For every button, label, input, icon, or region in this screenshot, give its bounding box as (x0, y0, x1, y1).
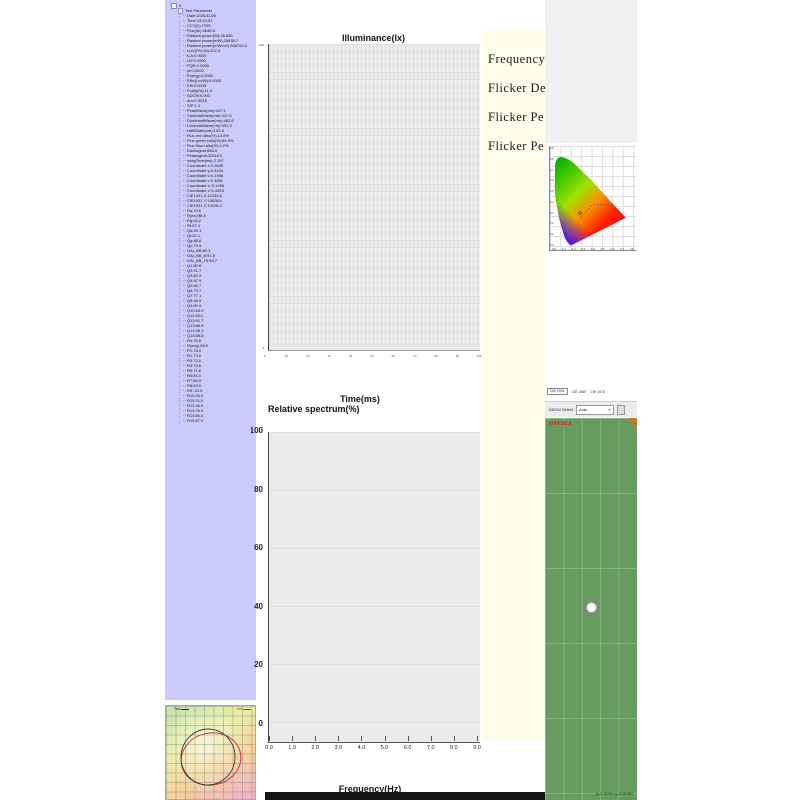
bottom-bar (265, 792, 545, 800)
tab-cie-1976[interactable]: CIE 1976 (590, 390, 605, 394)
x-tick-label: 0 (260, 354, 270, 358)
illuminance-chart-title: Illuminance(lx) (268, 33, 479, 43)
legend-test-label: Test (174, 707, 180, 711)
sdcm-select-label: SDCM Select (549, 407, 573, 412)
x-tick-label: 9.0 (470, 736, 484, 751)
cie-y-tick: 0.1 (550, 233, 553, 236)
app-window: 0 Test Parameter Date:2025/11/20 Time:13… (0, 0, 800, 800)
x-tick-label: 8.0 (447, 736, 461, 751)
tree-node-icon[interactable] (171, 3, 177, 9)
legend-ref: Ref (237, 707, 251, 711)
x-tick-label: 7.0 (424, 736, 438, 751)
x-tick-label: 60 (388, 354, 398, 358)
right-panel: 0.90.80.70.60.50.40.30.20.10.0 0.00.10.2… (545, 0, 637, 800)
cie-y-tick: 0.9 (550, 147, 553, 150)
cie-horseshoe (550, 146, 636, 250)
sdcm-dropdown[interactable]: Auto ▼ (576, 405, 614, 415)
cie-x-tick: 0.7 (620, 247, 624, 251)
cie-y-tick: 0.4 (550, 201, 553, 204)
max-value-label: MAX:92.0 (549, 421, 572, 427)
x-tick-label: 6.0 (401, 736, 415, 751)
spectrum-chart-title: Relative spectrum(%) (268, 404, 398, 414)
cie-x-tick: 0.2 (571, 247, 575, 251)
y-tick-label: 40 (251, 602, 263, 661)
x-tick-label: 10 (281, 354, 291, 358)
cie-x-tick: 0.1 (562, 247, 566, 251)
tab-cie-1960[interactable]: CIE 1960 (572, 390, 587, 394)
polar-plot-panel: Test Ref (165, 705, 256, 800)
x-tick-label: 40 (346, 354, 356, 358)
x-tick-label: 90 (453, 354, 463, 358)
polar-legend: Test Ref (174, 707, 251, 711)
cie-x-ticks: 0.00.10.20.30.40.50.60.70.8 (552, 247, 634, 251)
test-line-swatch (181, 709, 189, 710)
illuminance-plot-area (268, 44, 480, 351)
cie-y-tick: 0.8 (550, 158, 553, 161)
illuminance-x-ticks: 0102030405060708090100 (260, 354, 484, 358)
x-tick-label: 80 (431, 354, 441, 358)
y-tick-label: 60 (251, 543, 263, 602)
measurement-spot-dot (587, 603, 596, 612)
x-tick-label: 20 (303, 354, 313, 358)
cie-chromaticity-diagram: 0.90.80.70.60.50.40.30.20.10.0 0.00.10.2… (549, 146, 636, 251)
chevron-down-icon: ▼ (608, 408, 611, 412)
corner-marker-icon (627, 418, 637, 428)
flicker-line: Flicker Pe (483, 110, 545, 139)
illuminance-y-min-tick: 0 (250, 346, 264, 350)
flicker-line: Flicker De (483, 81, 545, 110)
tab-cie-1931[interactable]: CIE 1931 (547, 388, 568, 395)
spectrum-x-ticks: 0.01.02.03.04.05.06.07.08.09.0 (262, 736, 484, 751)
flicker-lines: Frequency(Flicker DeFlicker PeFlicker Pe (483, 30, 545, 168)
cie-x-tick: 0.6 (610, 247, 614, 251)
cie-y-tick: 0.6 (550, 179, 553, 182)
spectrum-plot-area (268, 432, 480, 743)
flicker-line: Flicker Pe (483, 139, 545, 168)
camera-target-panel: MAX:92.0 x:0.0000 y:0.0000 (545, 418, 637, 800)
polar-curves (166, 706, 255, 799)
parameter-tree[interactable]: 0 Test Parameter Date:2025/11/20 Time:13… (165, 0, 256, 700)
legend-ref-label: Ref (237, 707, 242, 711)
illuminance-x-axis-label: Time(ms) (300, 394, 420, 404)
cie-x-tick: 0.4 (591, 247, 595, 251)
x-tick-label: 1.0 (285, 736, 299, 751)
x-tick-label: 3.0 (331, 736, 345, 751)
cie-x-tick: 0.8 (630, 247, 634, 251)
x-tick-label: 30 (324, 354, 334, 358)
sdcm-toolbar: SDCM Select Auto ▼ (545, 401, 637, 417)
cie-y-tick: 0.2 (550, 222, 553, 225)
cie-x-tick: 0.0 (552, 247, 556, 251)
cie-y-tick: 0.3 (550, 212, 553, 215)
x-tick-label: 4.0 (354, 736, 368, 751)
ref-line-swatch (243, 709, 251, 710)
y-tick-label: 80 (251, 485, 263, 544)
right-panel-header-area (545, 0, 637, 143)
illuminance-y-max-tick: 100 (250, 43, 264, 47)
x-tick-label: 50 (367, 354, 377, 358)
cie-x-tick: 0.5 (601, 247, 605, 251)
x-tick-label: 5.0 (378, 736, 392, 751)
legend-test: Test (174, 707, 189, 711)
flicker-panel: Frequency(Flicker DeFlicker PeFlicker Pe (483, 30, 545, 740)
sdcm-extra-button[interactable] (617, 405, 625, 415)
x-tick-label: 0.0 (262, 736, 276, 751)
cie-y-tick: 0.7 (550, 169, 553, 172)
cie-y-tick: 0.5 (550, 190, 553, 193)
tree-item[interactable]: R15:67.0 (183, 418, 256, 423)
sdcm-dropdown-value: Auto (579, 407, 587, 412)
y-tick-label: 100 (251, 426, 263, 485)
x-tick-label: 2.0 (308, 736, 322, 751)
flicker-line: Frequency( (483, 52, 545, 81)
cie-tab-bar: CIE 1931 CIE 1960 CIE 1976 (547, 388, 605, 395)
tree-item-list: Date:2025/11/20 Time:13:20:51 CCT(K):729… (179, 13, 256, 423)
xy-readout: x:0.0000 y:0.0000 (596, 791, 633, 796)
x-tick-label: 70 (410, 354, 420, 358)
cie-y-ticks: 0.90.80.70.60.50.40.30.20.10.0 (550, 147, 553, 247)
cie-x-tick: 0.3 (581, 247, 585, 251)
